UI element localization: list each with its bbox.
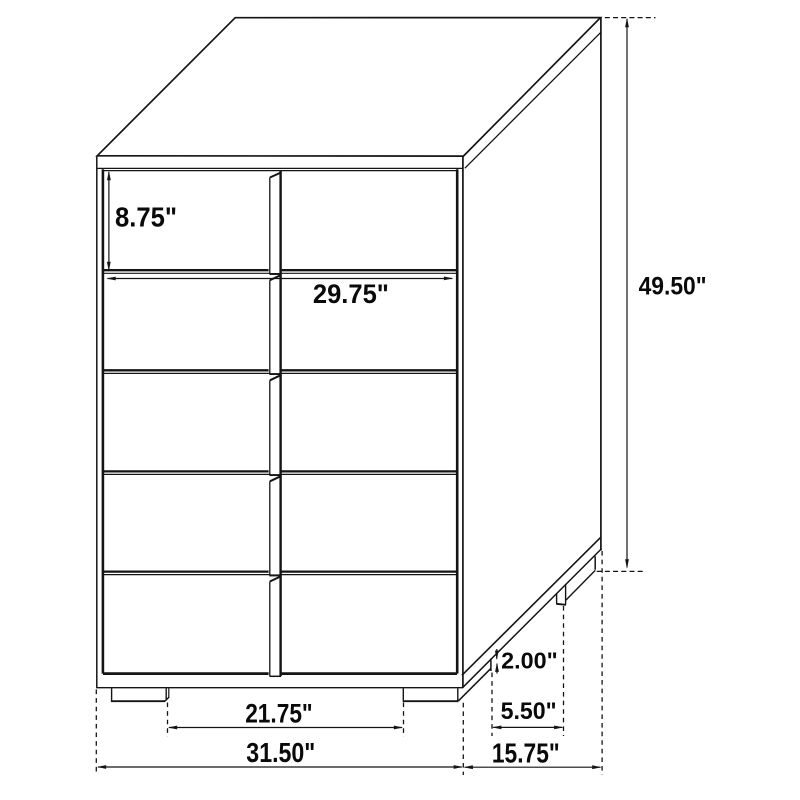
- svg-text:8.75": 8.75": [115, 202, 177, 233]
- svg-text:15.75": 15.75": [492, 738, 560, 769]
- svg-text:31.50": 31.50": [246, 737, 315, 768]
- svg-text:21.75": 21.75": [245, 699, 313, 729]
- svg-text:2.00": 2.00": [501, 648, 558, 674]
- svg-text:5.50": 5.50": [501, 698, 557, 725]
- svg-text:29.75": 29.75": [313, 279, 389, 309]
- svg-text:49.50": 49.50": [639, 272, 707, 300]
